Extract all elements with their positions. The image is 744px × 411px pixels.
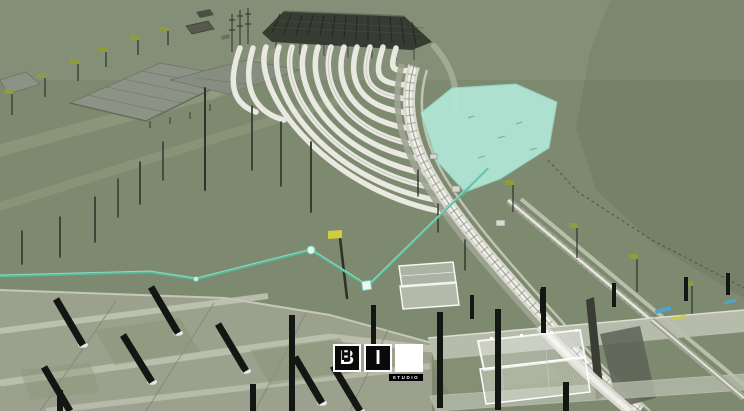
yellow-flag [328, 230, 342, 239]
utility-node-cube [361, 280, 371, 290]
bim-logo: B I M STUDIO [333, 344, 423, 372]
logo-m-glyph [333, 344, 353, 364]
utility-node-sphere [307, 246, 315, 254]
logo-letter-i: I [375, 348, 381, 368]
logo-tile-m: M [395, 344, 423, 372]
logo-letter-m: M [409, 358, 410, 359]
logo-subtext: STUDIO [389, 374, 423, 381]
logo-tile-i: I [364, 344, 392, 372]
render-viewport: B I M STUDIO [0, 0, 744, 411]
